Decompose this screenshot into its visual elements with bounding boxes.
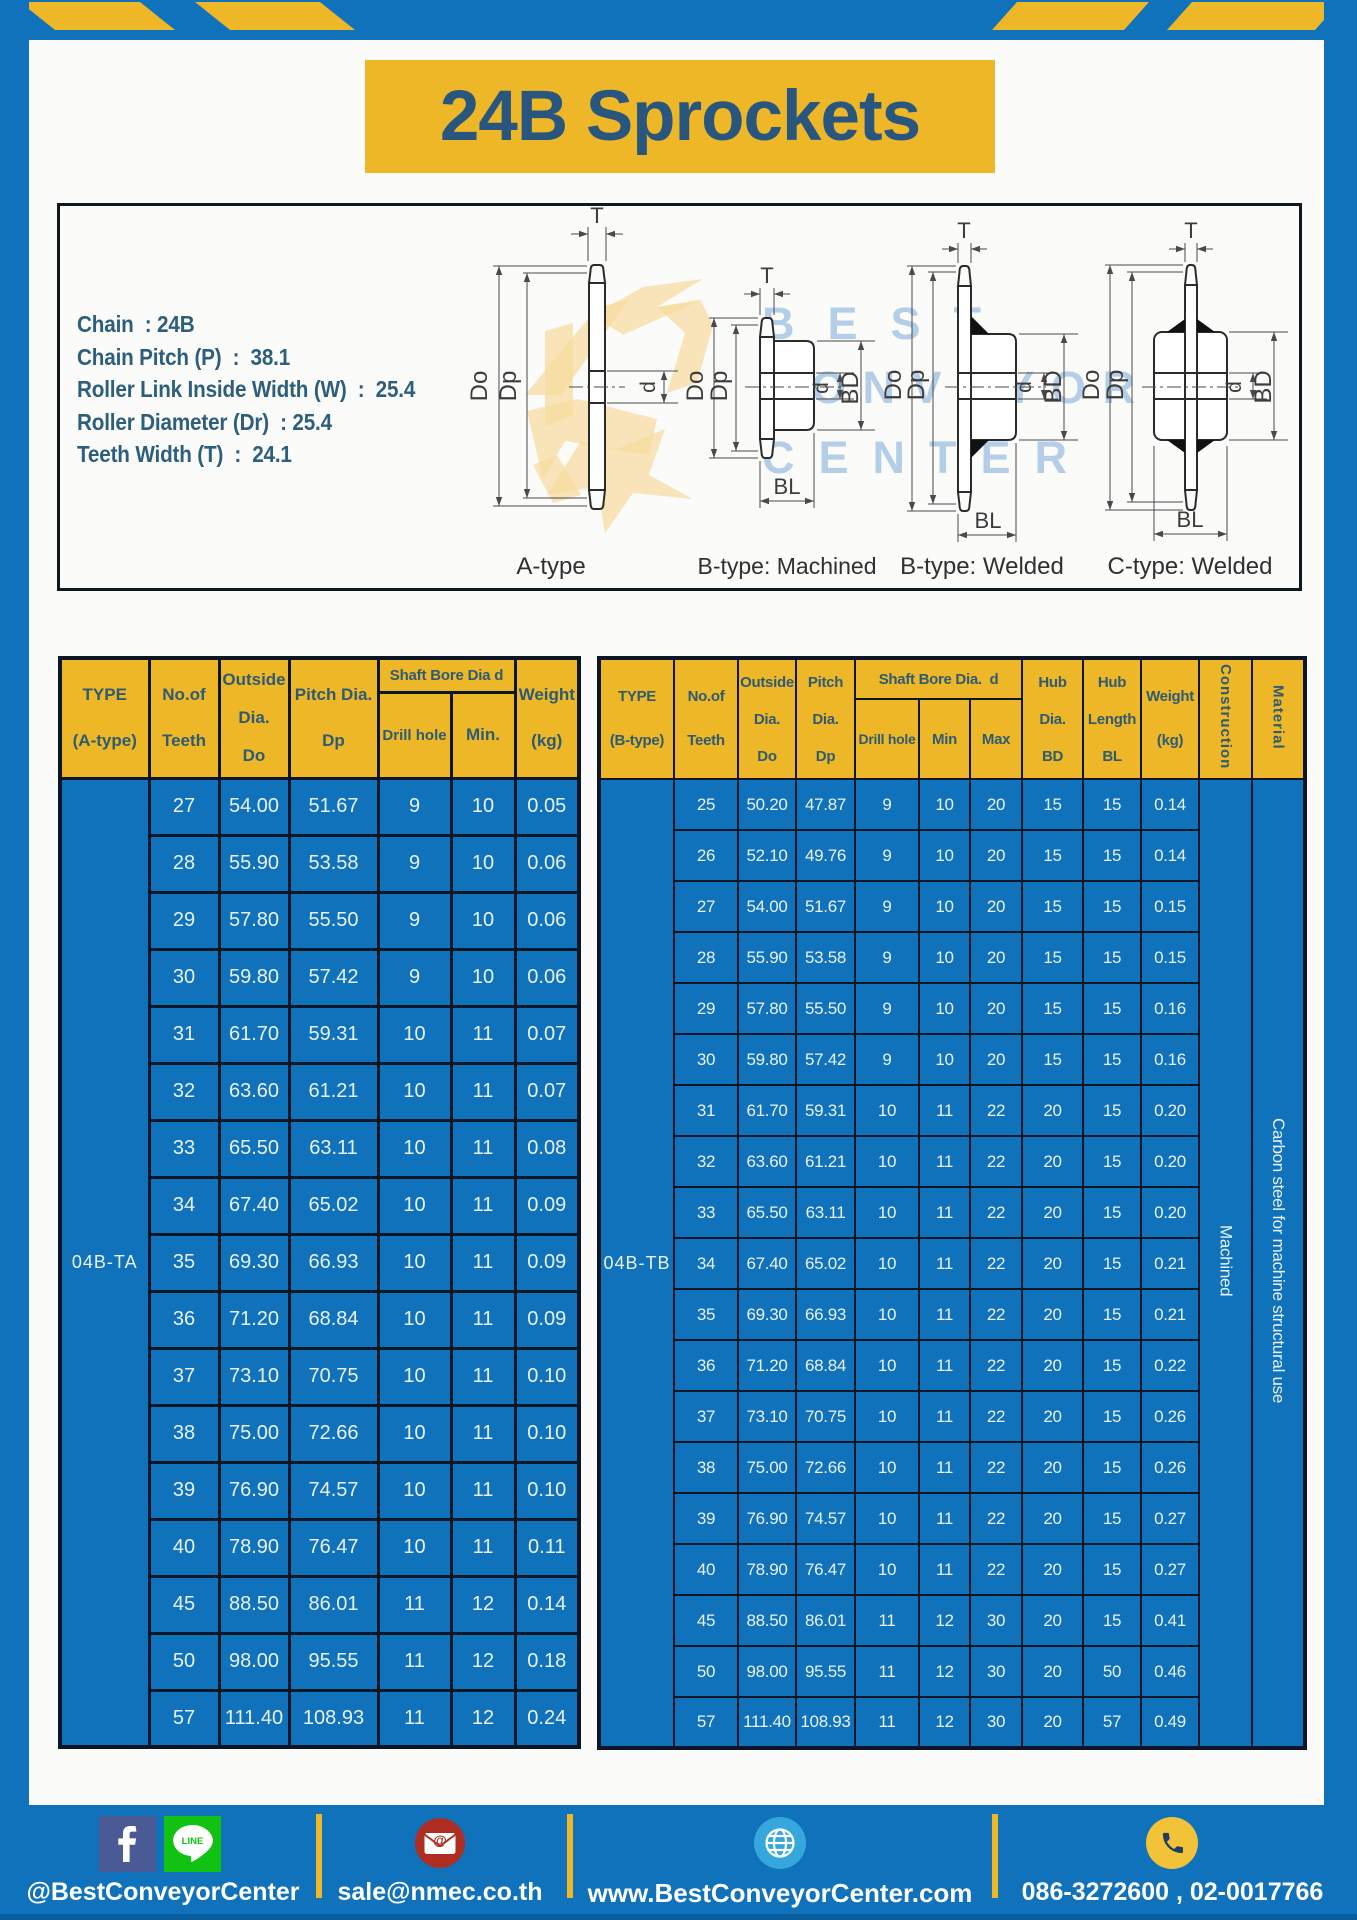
svg-text:B-type: Machined: B-type: Machined [698, 553, 877, 579]
svg-text:Do: Do [1078, 370, 1105, 401]
svg-text:LINE: LINE [182, 1836, 204, 1847]
svg-text:T: T [1184, 218, 1197, 243]
svg-text:d: d [1223, 381, 1246, 393]
svg-text:C-type: Welded: C-type: Welded [1108, 553, 1273, 580]
svg-text:BD: BD [1040, 370, 1067, 403]
svg-text:d: d [637, 381, 660, 393]
svg-text:Dp: Dp [1102, 370, 1129, 401]
svg-text:BL: BL [774, 474, 801, 499]
svg-text:BL: BL [975, 508, 1002, 533]
svg-text:@: @ [433, 1832, 447, 1848]
svg-text:T: T [760, 263, 773, 288]
svg-text:Dp: Dp [495, 371, 522, 402]
svg-text:T: T [957, 218, 970, 243]
svg-text:BD: BD [837, 371, 864, 404]
svg-text:T: T [590, 203, 603, 228]
svg-text:B-type: Welded: B-type: Welded [900, 553, 1064, 580]
svg-text:BD: BD [1250, 370, 1277, 403]
svg-text:BL: BL [1177, 507, 1204, 532]
svg-text:d: d [810, 382, 833, 394]
svg-text:A-type: A-type [516, 553, 585, 580]
svg-text:Do: Do [466, 371, 493, 402]
svg-text:d: d [1013, 381, 1036, 393]
svg-text:Dp: Dp [706, 371, 733, 402]
svg-text:Do: Do [682, 371, 709, 402]
svg-text:Dp: Dp [903, 370, 930, 401]
